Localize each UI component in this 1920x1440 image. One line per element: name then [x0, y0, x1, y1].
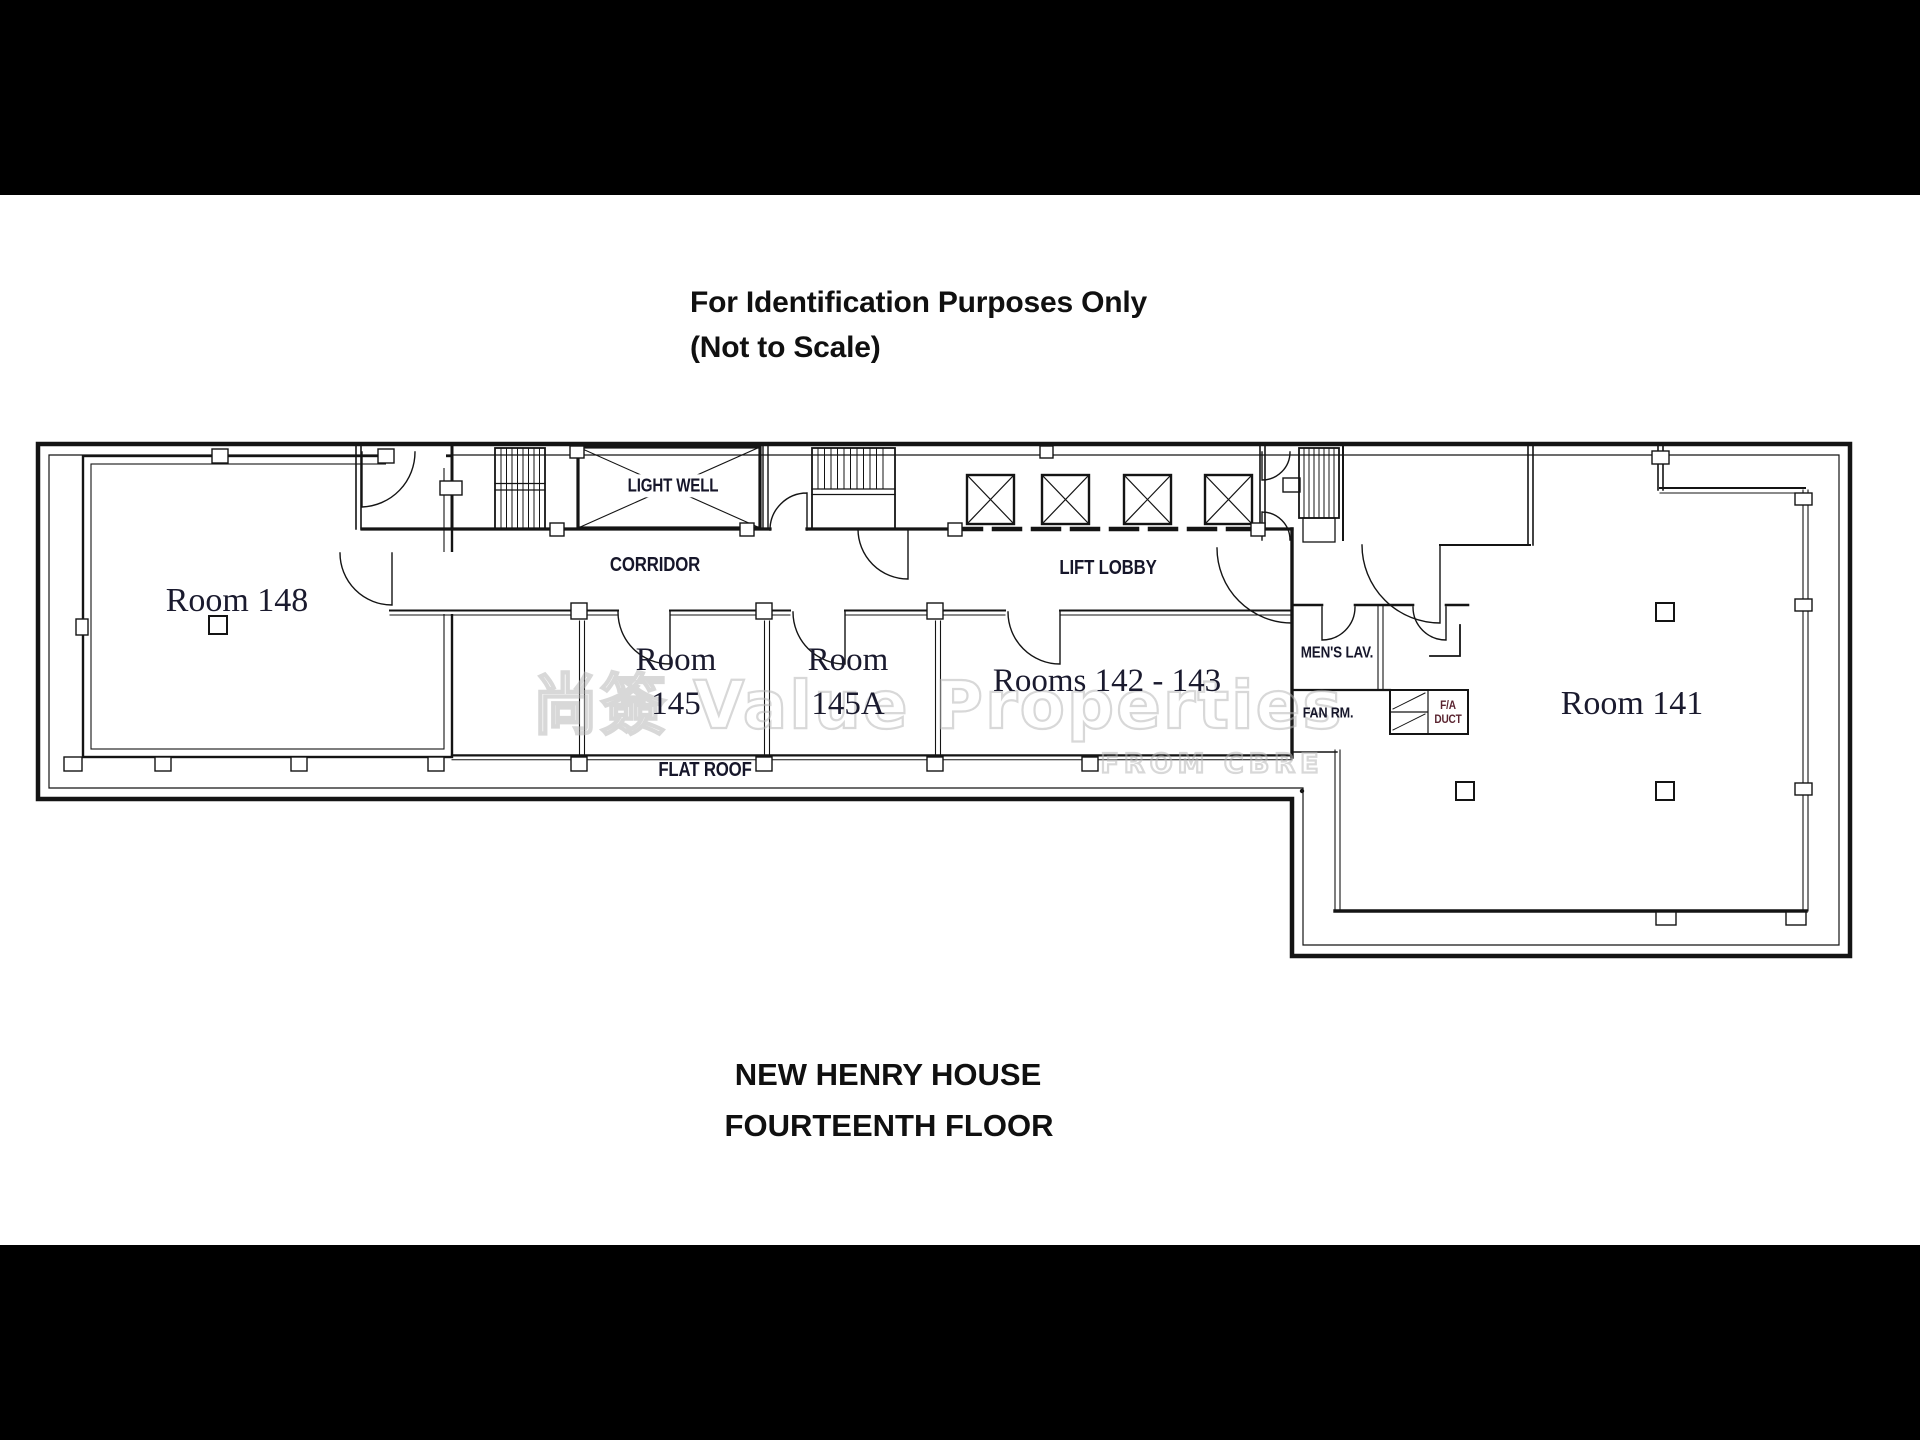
room-145-label: Room 145: [636, 638, 717, 726]
room-141-label: Room 141: [1561, 682, 1704, 726]
rooms-142-143-label: Rooms 142 - 143: [993, 659, 1221, 703]
lift-cross-marks: [967, 475, 1252, 524]
stair-1: [495, 448, 545, 529]
room-148-label: Room 148: [166, 579, 309, 623]
light-well-label: LIGHT WELL: [625, 474, 721, 497]
page-title-line1: For Identification Purposes Only: [690, 286, 1147, 320]
mens-lav-label: MEN'S LAV.: [1301, 644, 1373, 665]
building-name: NEW HENRY HOUSE: [735, 1055, 1042, 1095]
room-145a-label: Room 145A: [808, 638, 889, 726]
screenshot-stage: For Identification Purposes Only (Not to…: [0, 0, 1920, 1440]
floor-name: FOURTEENTH FLOOR: [725, 1106, 1054, 1146]
lift-boxes: [967, 475, 1252, 524]
fan-rm-label: FAN RM.: [1303, 703, 1354, 723]
corridor-label: CORRIDOR: [610, 552, 700, 578]
fa-duct-label: F/A DUCT: [1434, 698, 1461, 726]
lift-lobby-label: LIFT LOBBY: [1059, 555, 1156, 581]
flat-roof-label: FLAT ROOF: [658, 757, 751, 783]
watermark-subtext: FROM CBRE: [1100, 749, 1323, 780]
page-title-line2: (Not to Scale): [690, 331, 881, 365]
